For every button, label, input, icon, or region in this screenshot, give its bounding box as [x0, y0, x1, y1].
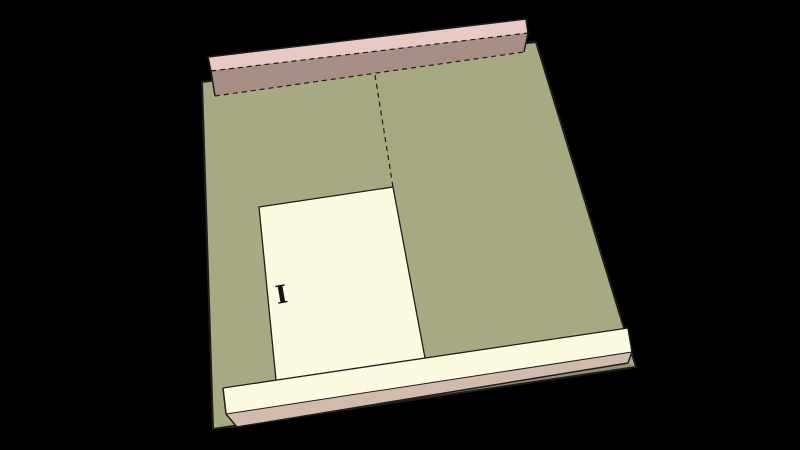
scene-canvas[interactable]: I	[0, 0, 800, 450]
model-viewport[interactable]: I	[0, 0, 800, 450]
